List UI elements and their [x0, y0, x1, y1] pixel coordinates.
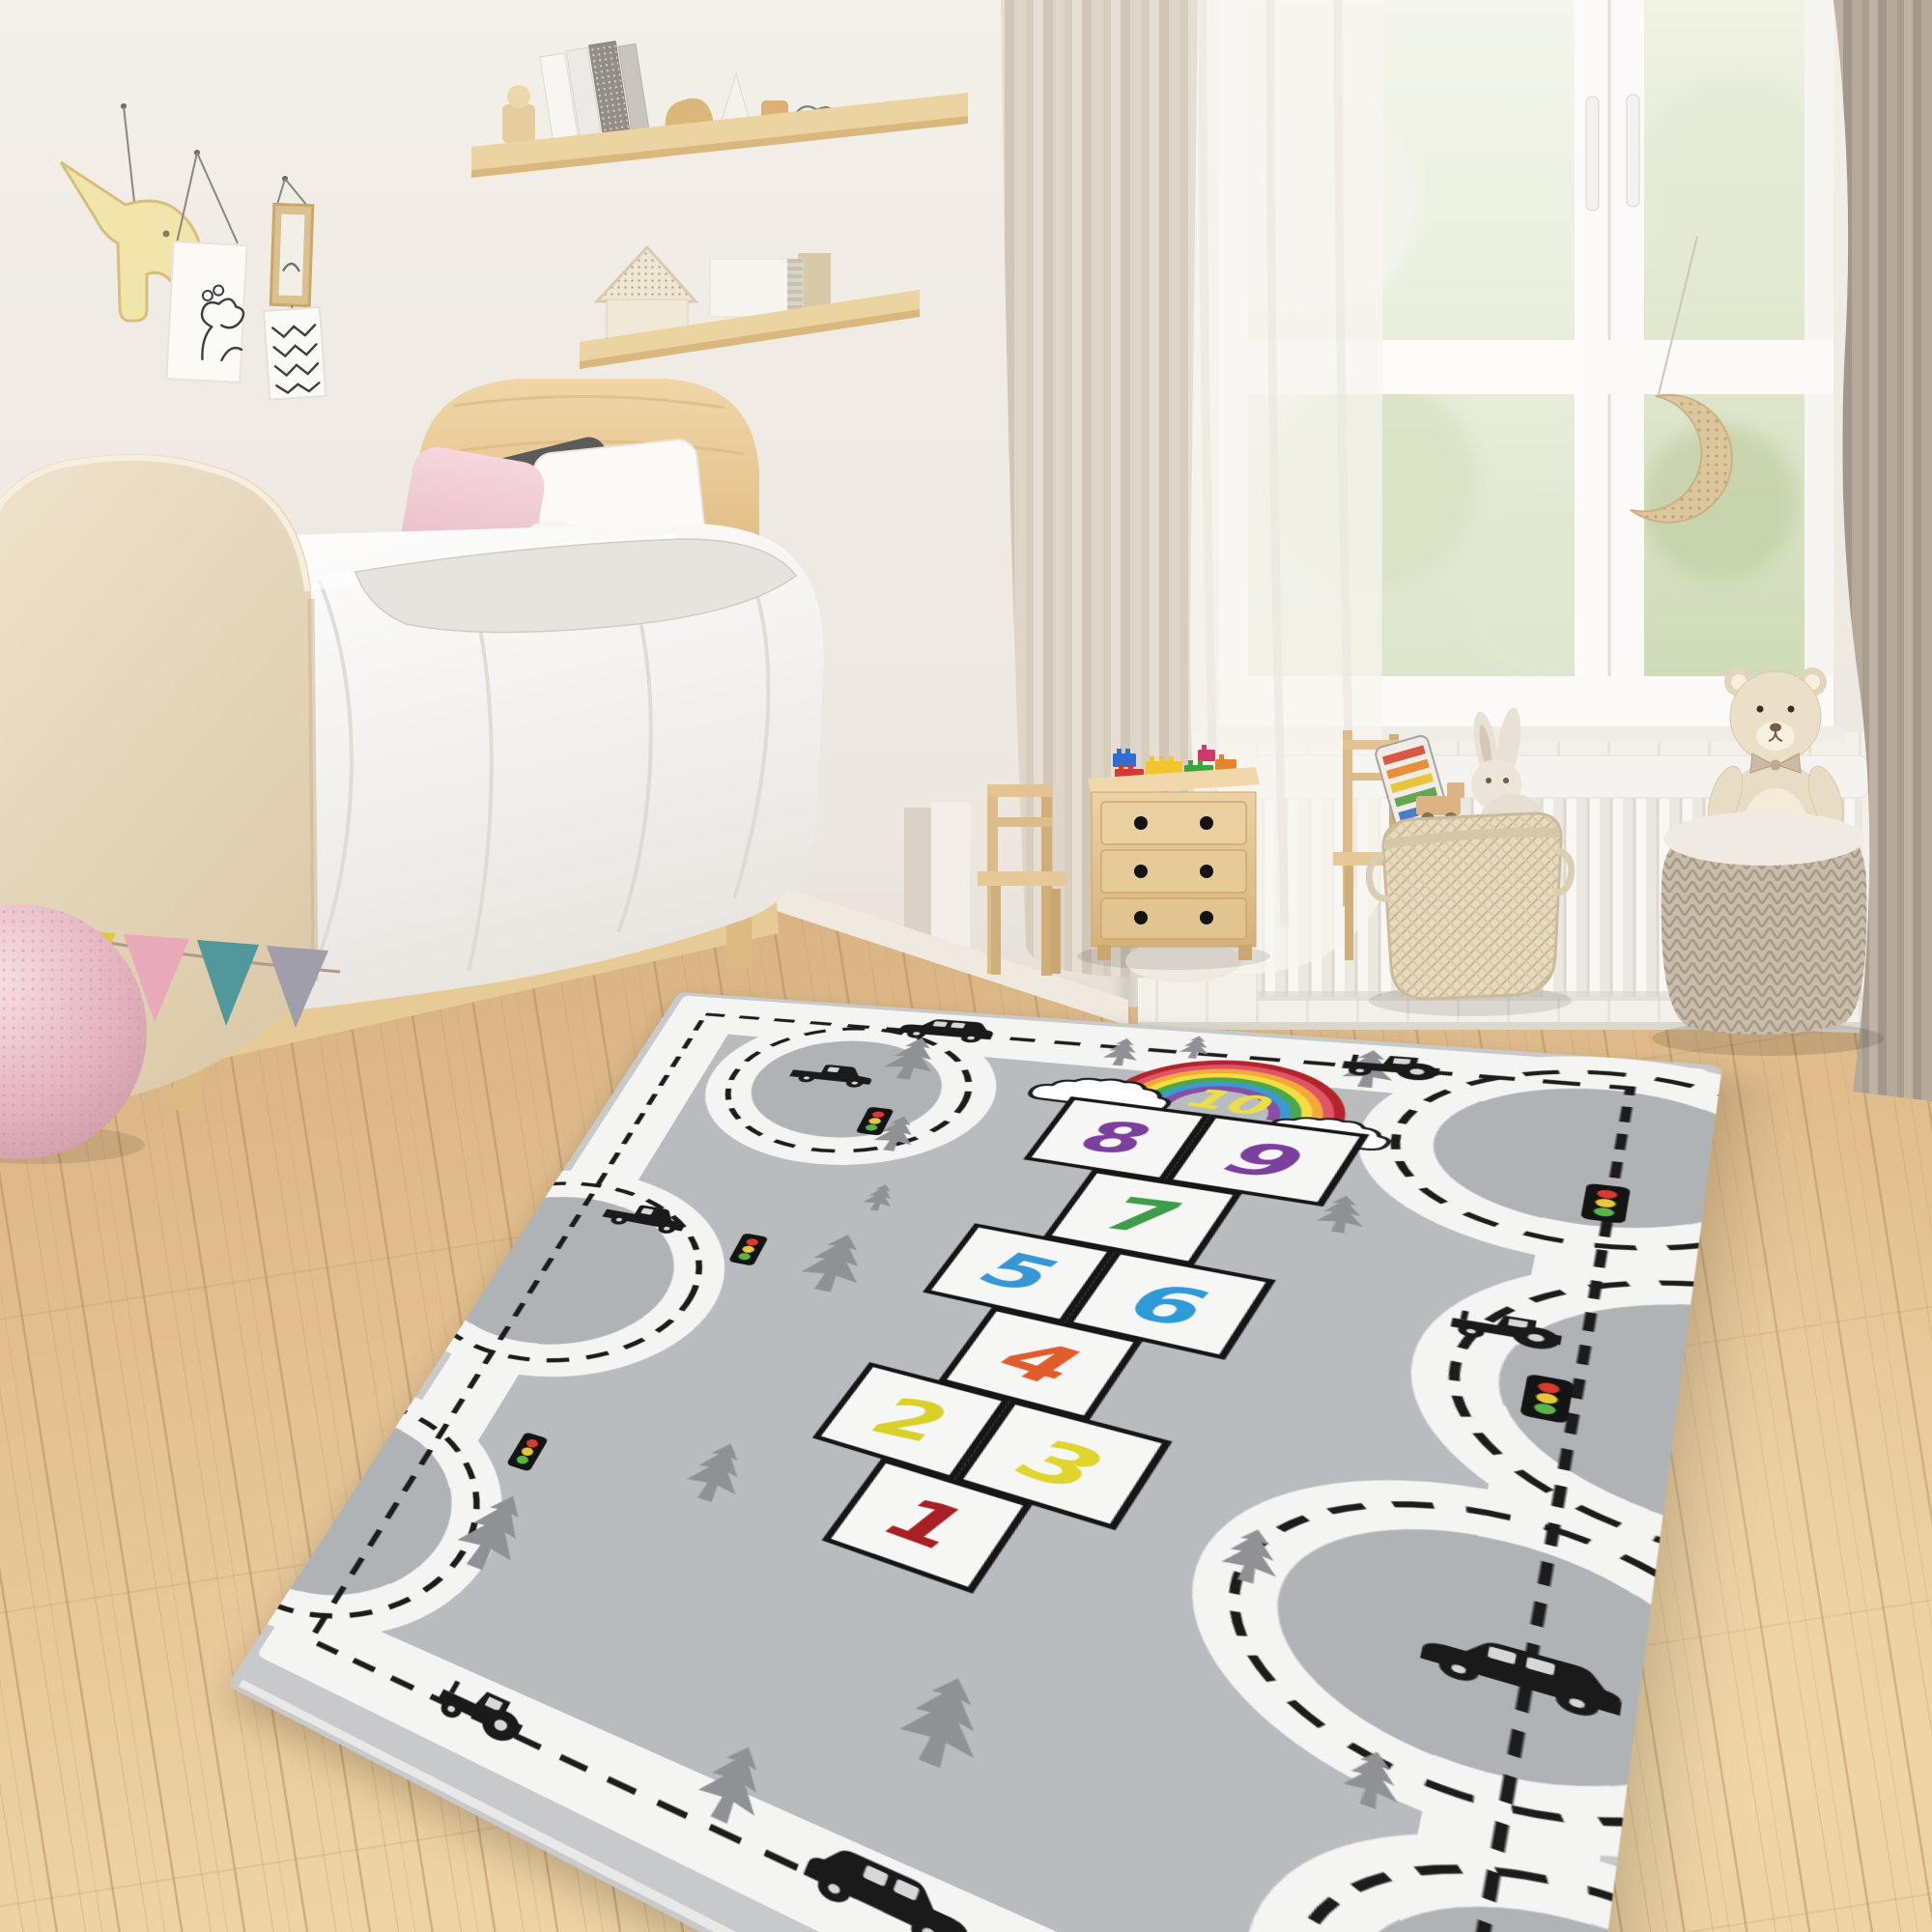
- drawer-knob[interactable]: [1134, 816, 1148, 830]
- window-handle[interactable]: [1586, 97, 1599, 211]
- drawer-knob[interactable]: [1134, 865, 1148, 878]
- drawer-knob[interactable]: [1200, 816, 1213, 830]
- drawer-knob[interactable]: [1200, 865, 1213, 878]
- dresser: [1077, 745, 1270, 970]
- window-handle[interactable]: [1627, 95, 1639, 207]
- scene: 10 8 9 7 5 6 4 2 3 1: [0, 0, 1932, 1932]
- drawer[interactable]: [1101, 898, 1246, 939]
- drawer-knob[interactable]: [1200, 911, 1213, 924]
- wooden-toy: [502, 104, 535, 143]
- art-card-zigzag: [264, 307, 326, 400]
- small-wood-frame: [270, 204, 313, 305]
- drawer[interactable]: [1101, 850, 1246, 893]
- drawer-knob[interactable]: [1134, 911, 1148, 924]
- drawer[interactable]: [1101, 802, 1246, 844]
- art-card-flowers: [166, 241, 246, 383]
